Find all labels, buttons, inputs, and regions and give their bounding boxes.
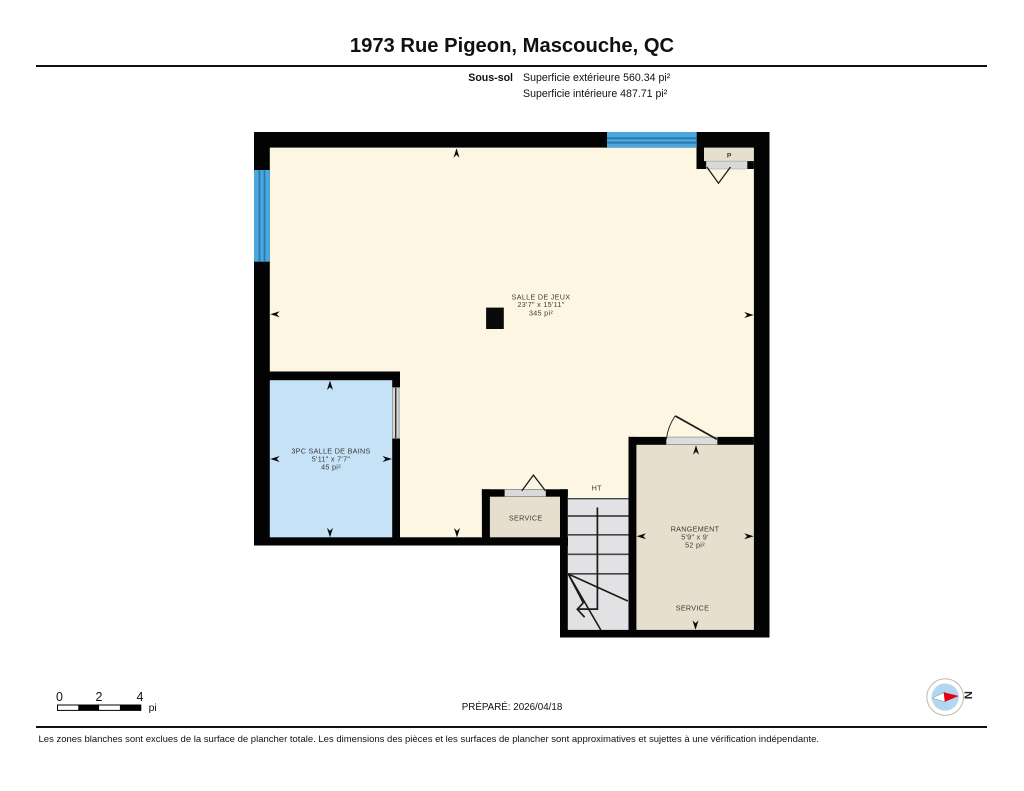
svg-text:N: N <box>962 691 974 699</box>
svg-text:SERVICE: SERVICE <box>509 514 543 523</box>
svg-text:SERVICE: SERVICE <box>676 603 710 612</box>
svg-text:P: P <box>727 152 732 159</box>
svg-text:52 pi²: 52 pi² <box>685 541 705 550</box>
svg-text:345 pi²: 345 pi² <box>529 308 553 317</box>
svg-text:45 pi²: 45 pi² <box>321 462 341 471</box>
svg-text:HT: HT <box>592 484 602 493</box>
